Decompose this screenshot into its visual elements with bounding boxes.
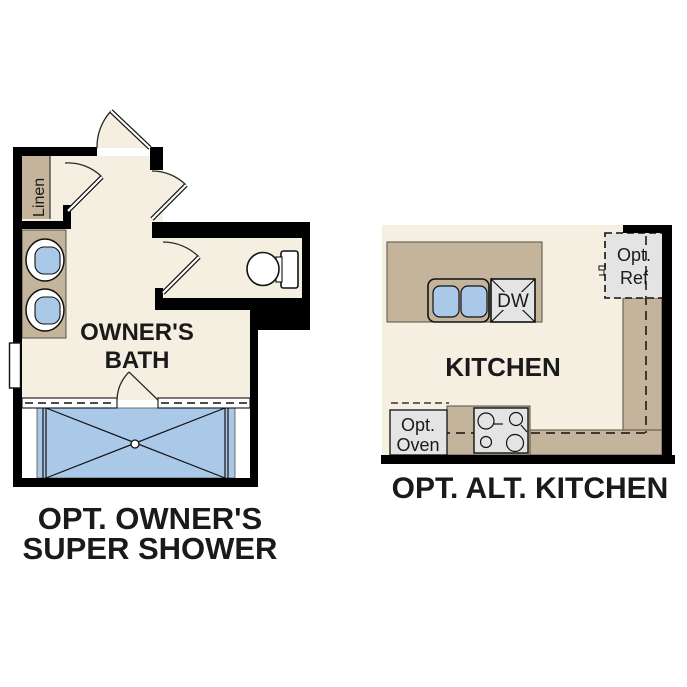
wall-segment (13, 478, 258, 487)
cooktop (474, 408, 528, 453)
island-sink-basin-2 (461, 286, 487, 317)
kitchen-caption: OPT. ALT. KITCHEN (392, 472, 669, 505)
oven-optional: Opt. Oven (390, 403, 449, 455)
wall-segment (381, 455, 675, 464)
floorplan-sheet: Linen OWNER'S BATH OPT. OWNER'S SUPER SH… (0, 0, 687, 687)
fridge-optional: Opt. Ref (599, 233, 663, 298)
kitchen-plan: DW Opt. Oven Opt. Ref (381, 225, 675, 505)
wall-segment (13, 147, 22, 487)
wall-segment (250, 310, 310, 330)
oven-label-line2: Oven (396, 435, 439, 455)
wall-segment (302, 222, 310, 310)
fridge-label-line2: Ref (620, 268, 649, 288)
bath-room-label-line1: OWNER'S (80, 319, 194, 346)
island-sink-basin-1 (433, 286, 459, 317)
wall-segment (155, 298, 310, 310)
linen-label: Linen (31, 178, 48, 217)
wall-segment (150, 147, 163, 170)
wall-segment (13, 147, 97, 156)
wall-segment (662, 225, 672, 464)
toilet-bowl (247, 253, 279, 286)
vanity-sink-1 (26, 239, 64, 281)
bath-room-label-line2: BATH (105, 347, 170, 374)
shower-glass-panel-right (158, 398, 250, 408)
shower-glass-panel-left (22, 398, 117, 408)
floorplan-canvas: Linen OWNER'S BATH OPT. OWNER'S SUPER SH… (0, 0, 687, 687)
toilet-tank (281, 251, 298, 288)
bath-plan: Linen OWNER'S BATH OPT. OWNER'S SUPER SH… (10, 111, 311, 566)
window (10, 343, 21, 388)
toilet-fixture (247, 251, 298, 288)
wall-segment (152, 222, 310, 238)
kitchen-room-label: KITCHEN (445, 352, 561, 382)
shower-drain-icon (131, 440, 139, 448)
wall-segment (250, 298, 258, 487)
dishwasher: DW (491, 279, 535, 322)
oven-label-line1: Opt. (401, 415, 435, 435)
vanity-sink-2 (26, 289, 64, 331)
bath-caption-line2: SUPER SHOWER (23, 531, 278, 566)
island-sink (428, 279, 489, 322)
dishwasher-label: DW (497, 291, 529, 312)
